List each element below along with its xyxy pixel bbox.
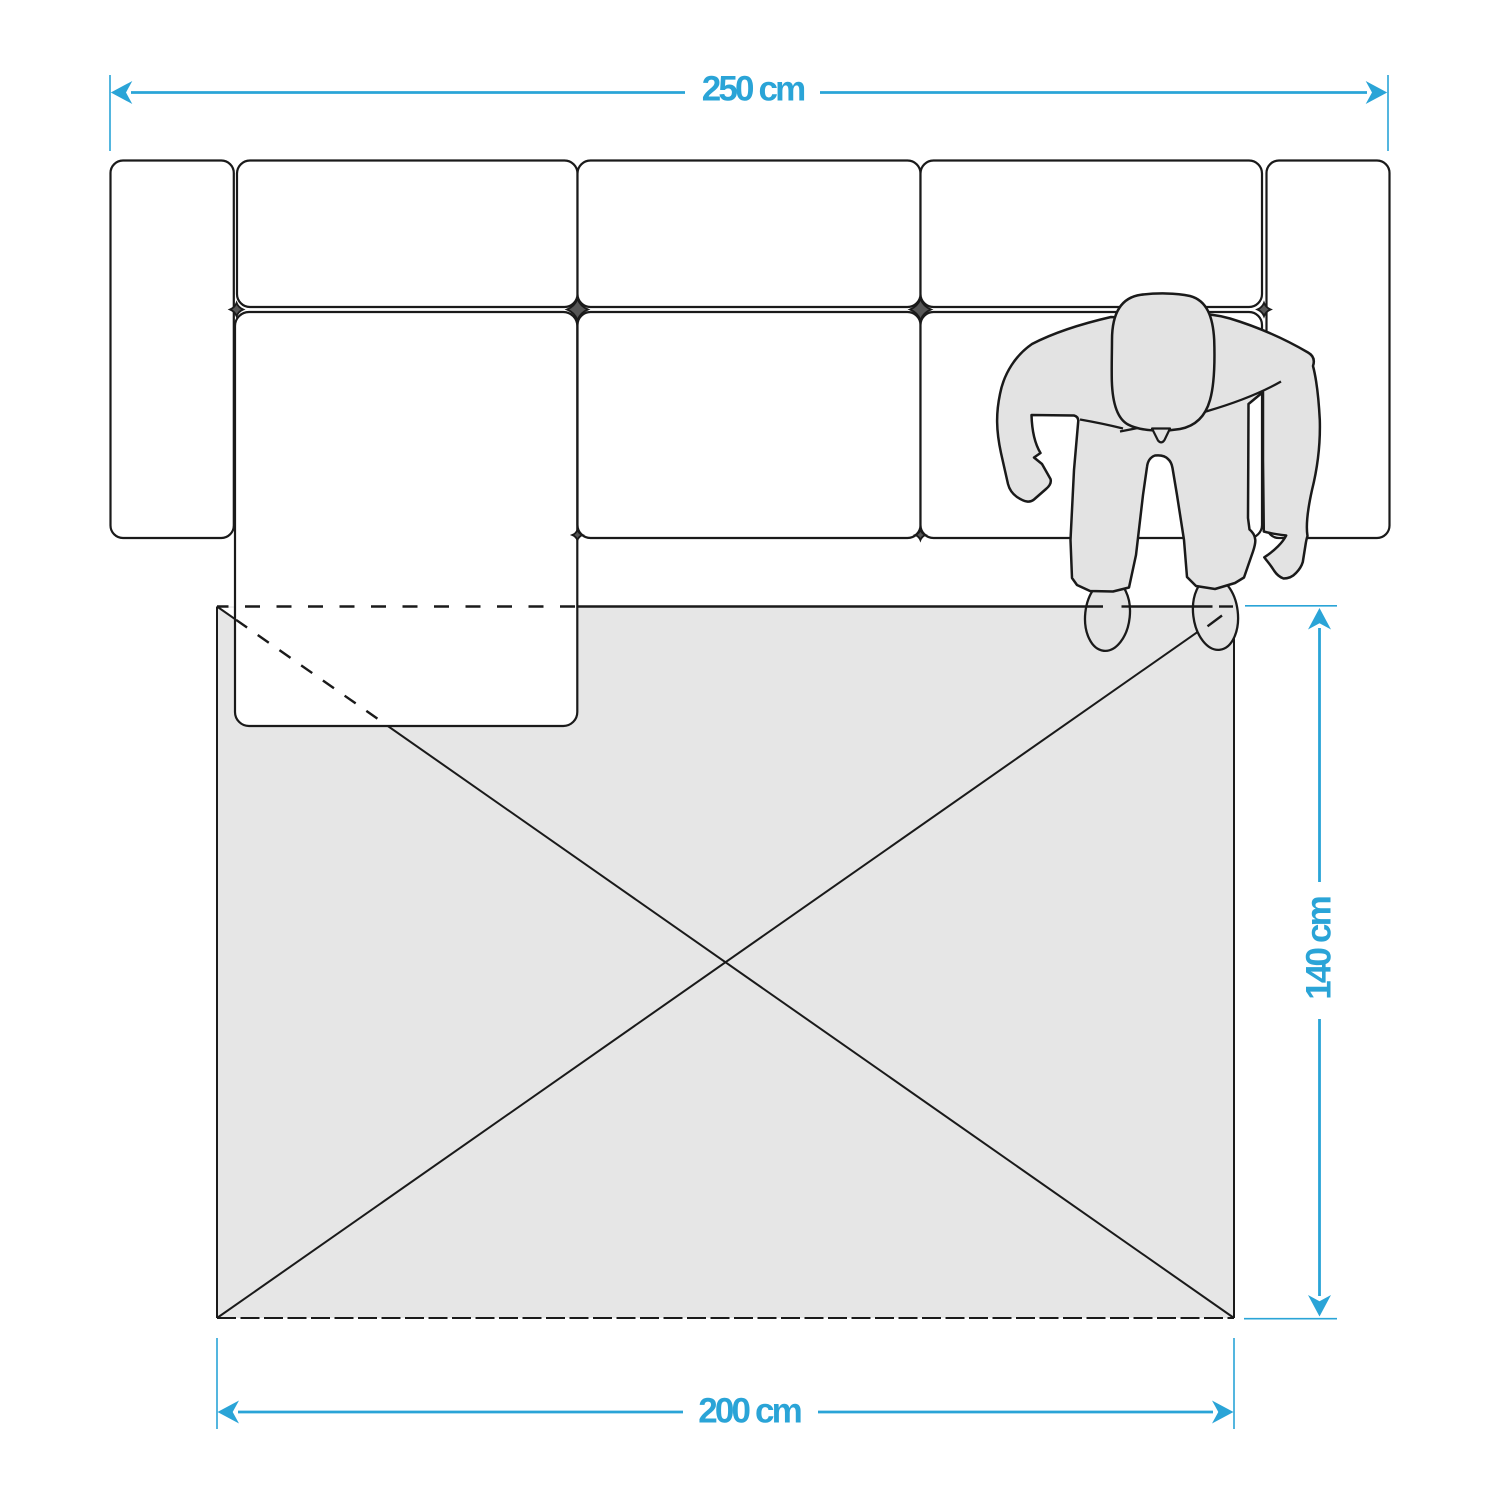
svg-text:200 cm: 200 cm [698,1392,803,1431]
svg-text:250 cm: 250 cm [702,70,807,109]
svg-text:140 cm: 140 cm [1300,895,1339,1000]
